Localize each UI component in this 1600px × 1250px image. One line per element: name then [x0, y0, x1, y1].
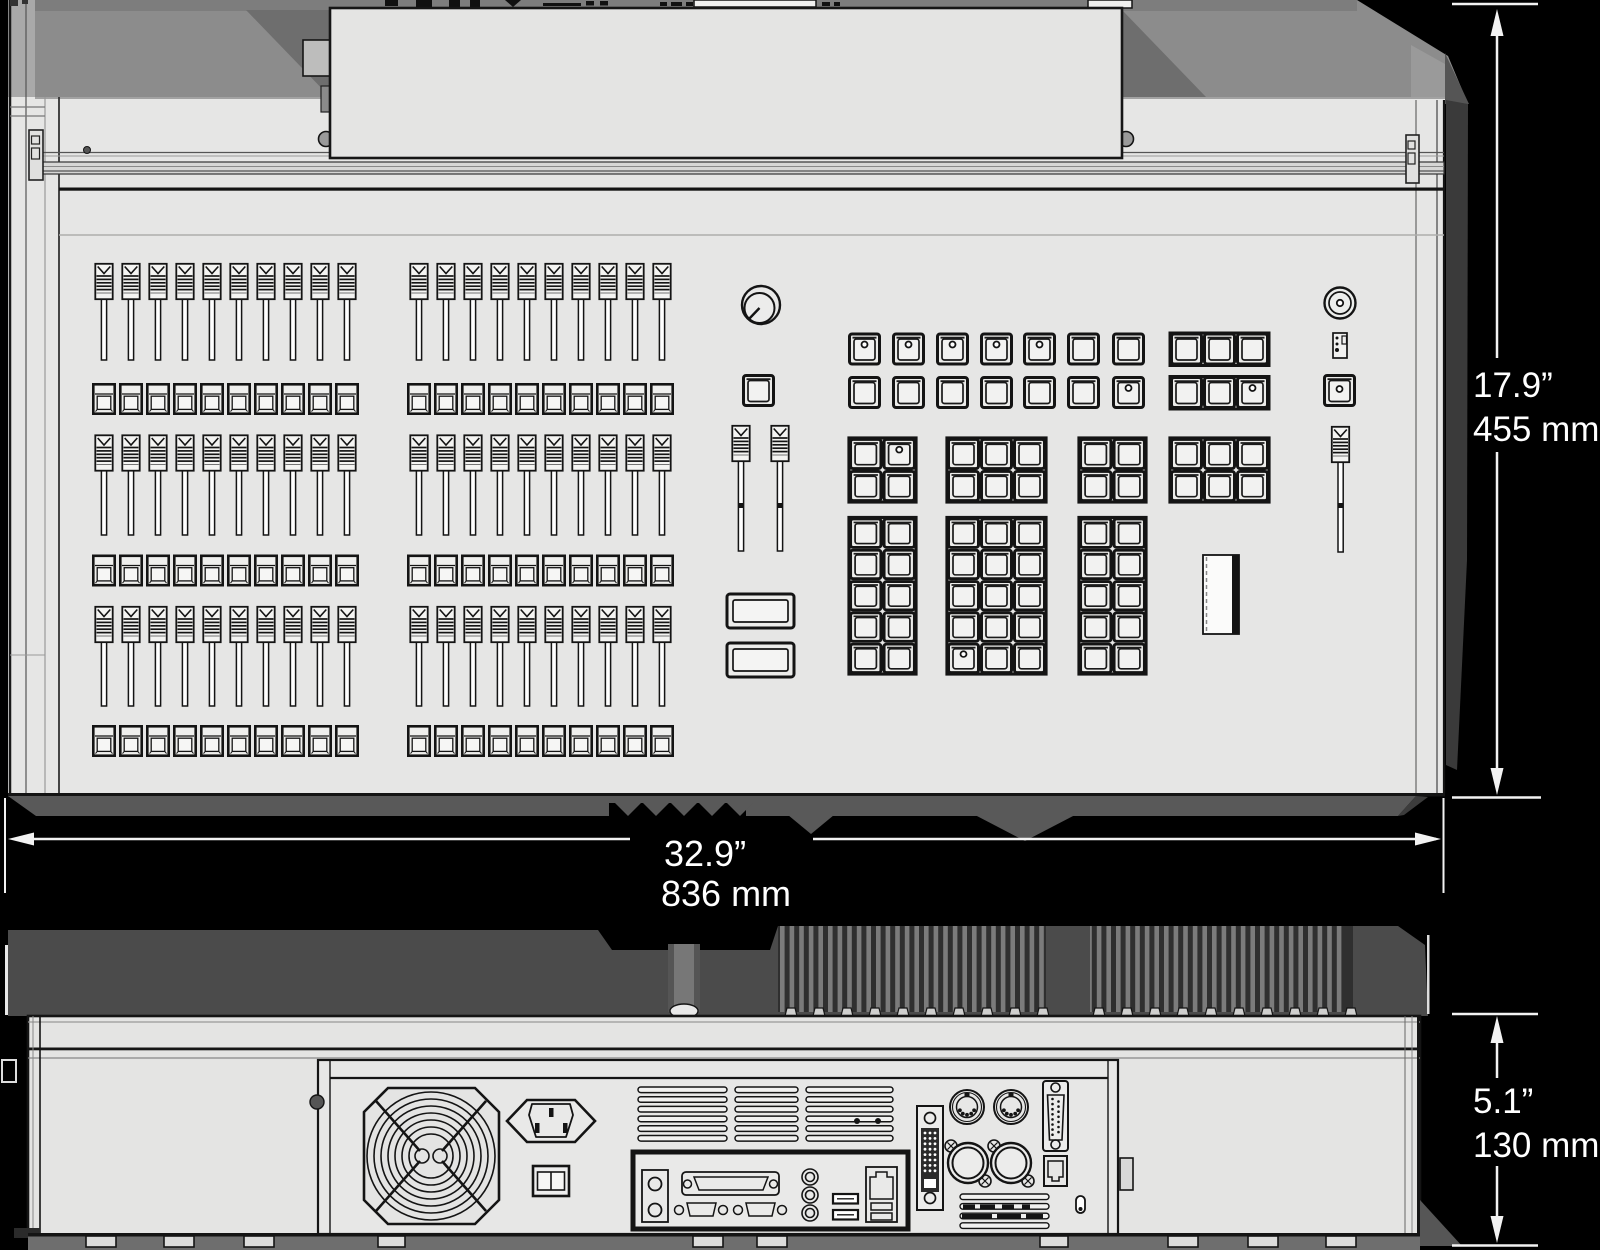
svg-text:455 mm: 455 mm	[1473, 410, 1599, 449]
svg-text:5.1”: 5.1”	[1473, 1082, 1533, 1121]
svg-text:130 mm: 130 mm	[1473, 1126, 1599, 1165]
svg-text:836 mm: 836 mm	[661, 873, 791, 914]
svg-text:17.9”: 17.9”	[1473, 366, 1553, 405]
svg-text:32.9”: 32.9”	[664, 833, 746, 874]
